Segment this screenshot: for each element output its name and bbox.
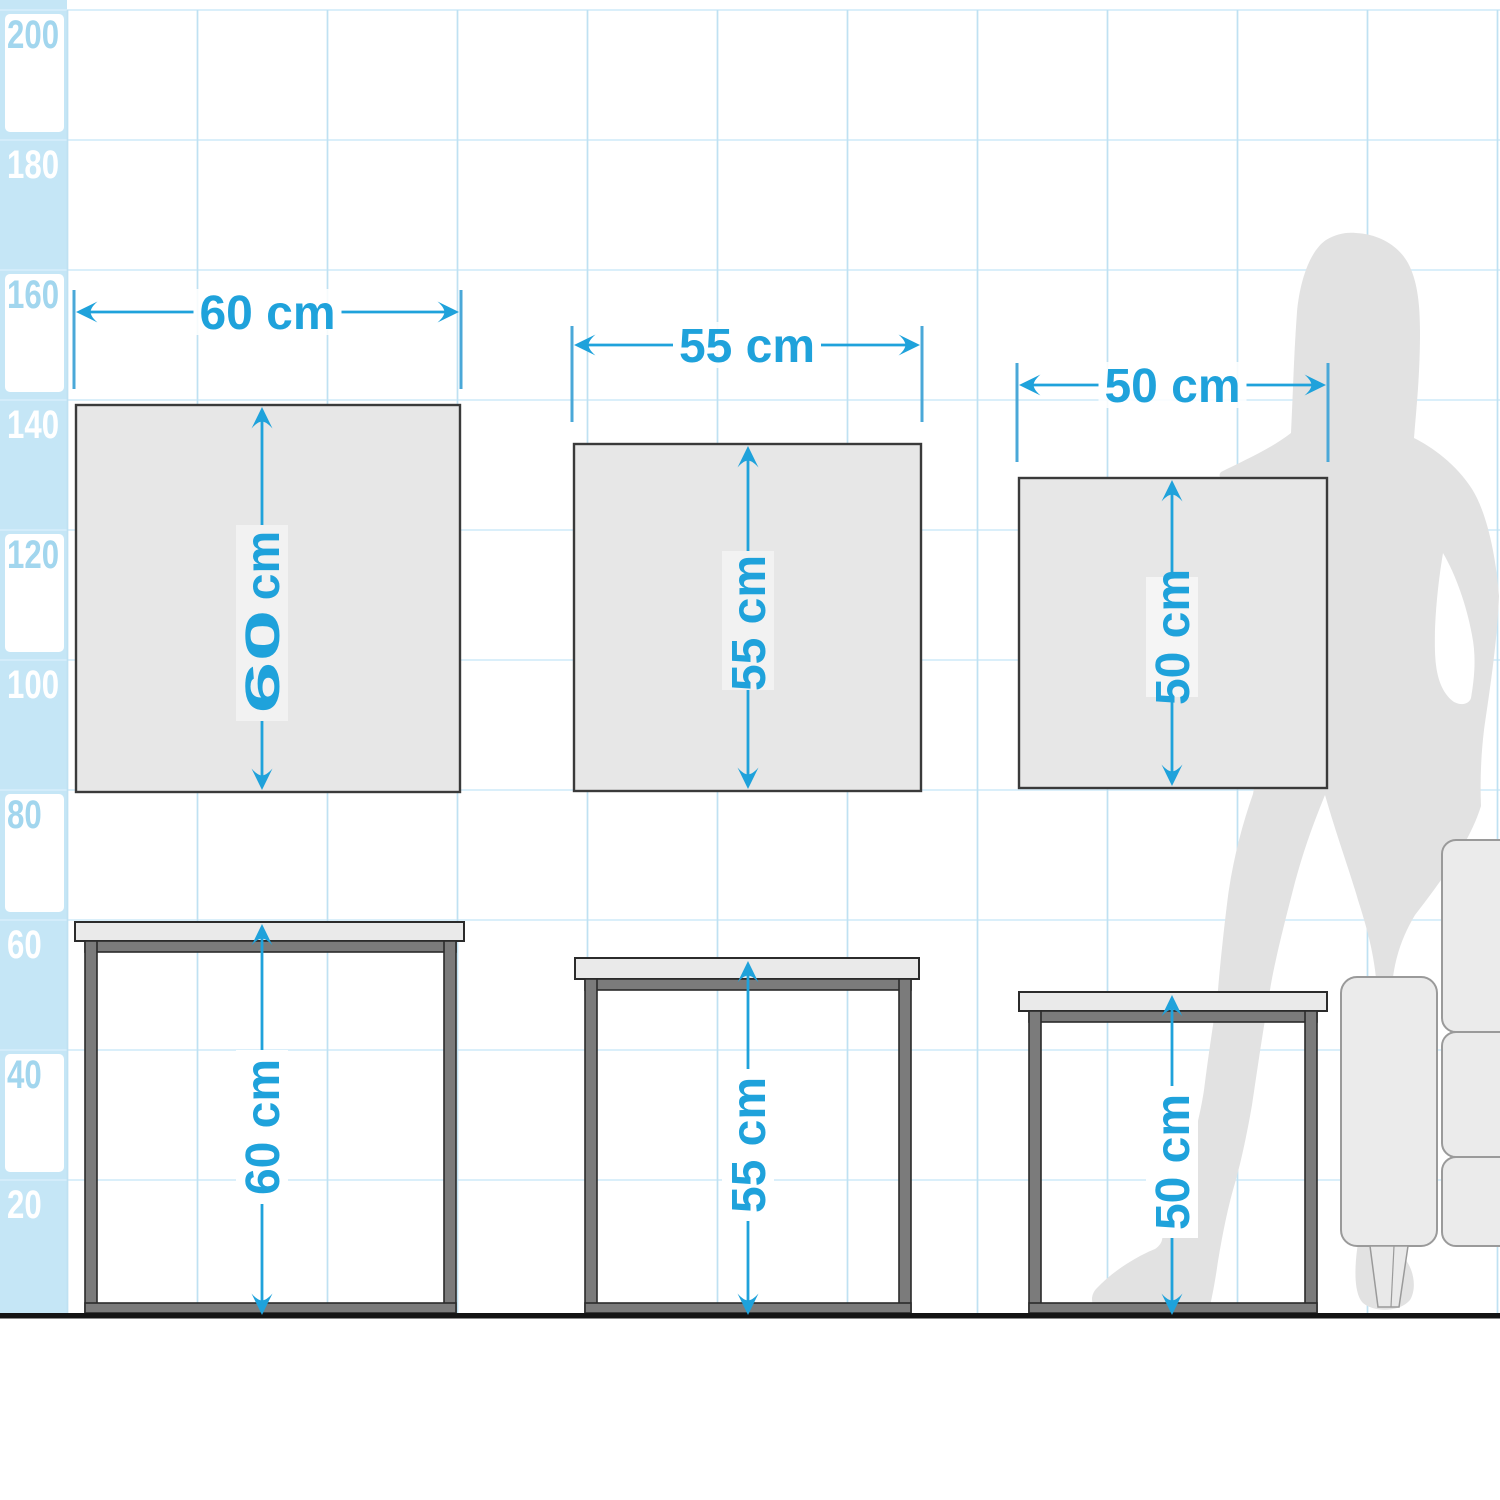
svg-text:60: 60 <box>7 922 42 967</box>
svg-text:120: 120 <box>7 532 59 577</box>
svg-text:20: 20 <box>7 1182 42 1227</box>
svg-text:40: 40 <box>7 1052 42 1097</box>
svg-text:160: 160 <box>7 272 59 317</box>
svg-text:60 cm: 60 cm <box>237 1059 290 1195</box>
svg-text:55 cm: 55 cm <box>723 555 776 691</box>
svg-text:cm: cm <box>237 531 290 600</box>
svg-text:60 cm: 60 cm <box>199 287 335 340</box>
svg-text:50 cm: 50 cm <box>1147 1094 1200 1230</box>
svg-text:50 cm: 50 cm <box>1147 569 1200 705</box>
svg-text:55 cm: 55 cm <box>723 1077 776 1213</box>
svg-text:100: 100 <box>7 662 59 707</box>
svg-text:180: 180 <box>7 142 59 187</box>
svg-text:60: 60 <box>236 609 290 713</box>
svg-text:80: 80 <box>7 792 42 837</box>
svg-text:140: 140 <box>7 402 59 447</box>
svg-text:200: 200 <box>7 12 59 57</box>
svg-text:55 cm: 55 cm <box>679 320 815 373</box>
svg-text:50 cm: 50 cm <box>1104 360 1240 413</box>
